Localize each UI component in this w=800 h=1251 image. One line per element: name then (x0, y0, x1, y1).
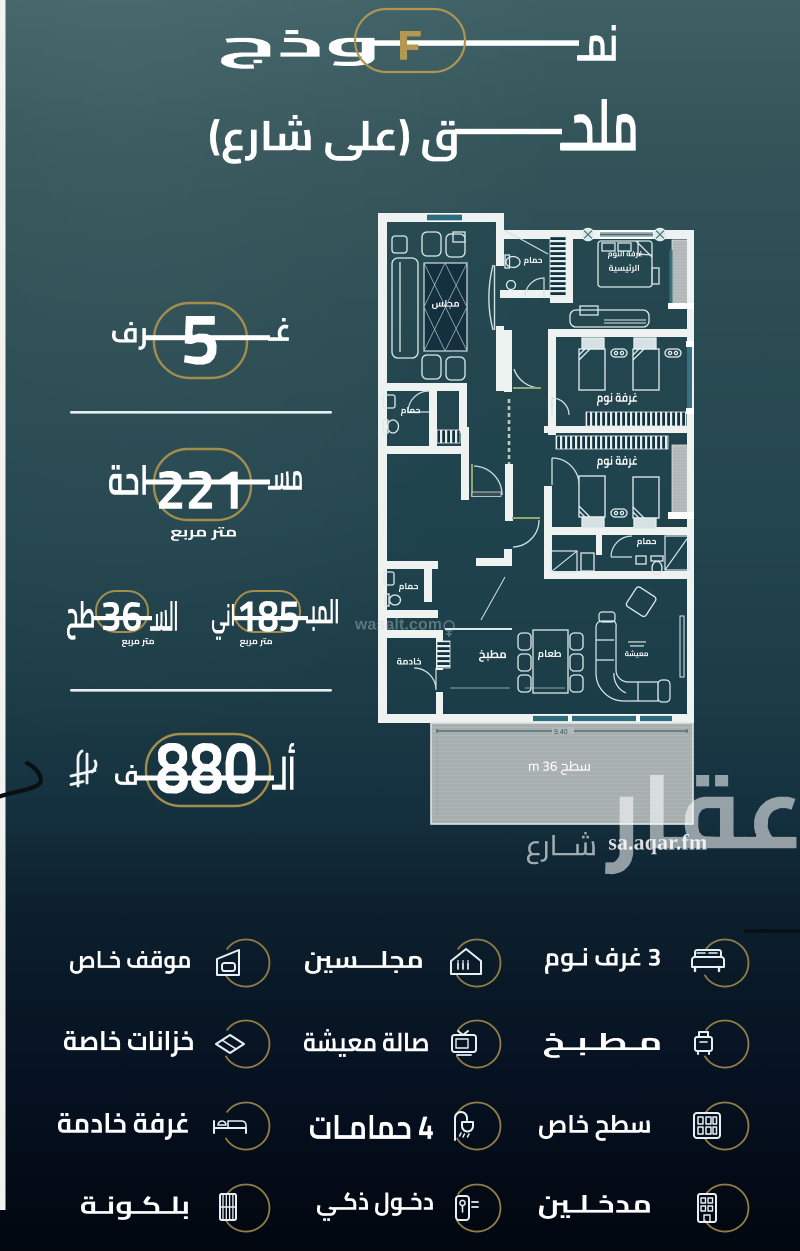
svg-text:9.40: 9.40 (554, 729, 568, 736)
